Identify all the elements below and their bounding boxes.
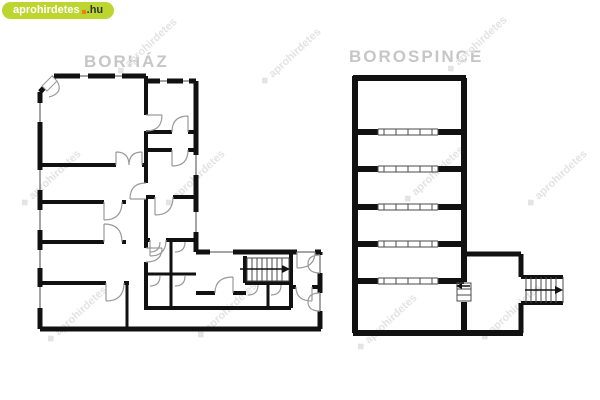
borospince-step-symbol [456, 283, 471, 301]
borospince-extension-walls [466, 254, 521, 333]
borospince-divider-racks [378, 129, 438, 284]
floorplans-drawing [0, 0, 600, 400]
logo-brand-text: aprohirdetes [13, 2, 80, 19]
aprohirdetes-logo: aprohirdetes .hu [2, 2, 114, 19]
borhaz-staircase [240, 258, 290, 281]
borospince-stairs-arrowhead [555, 286, 563, 294]
borospince-floorplan [353, 76, 563, 333]
logo-orange-dot-icon [82, 10, 86, 14]
listing-image: BORHÁZ BOROSPINCE ❖aprohirdetes ❖aprohir… [0, 0, 600, 400]
logo-tld-text: .hu [87, 2, 104, 19]
borospince-staircase [521, 277, 563, 303]
borospince-divider-stubs [355, 132, 464, 281]
borhaz-floorplan [40, 76, 321, 329]
borhaz-entrance-door [42, 76, 59, 97]
